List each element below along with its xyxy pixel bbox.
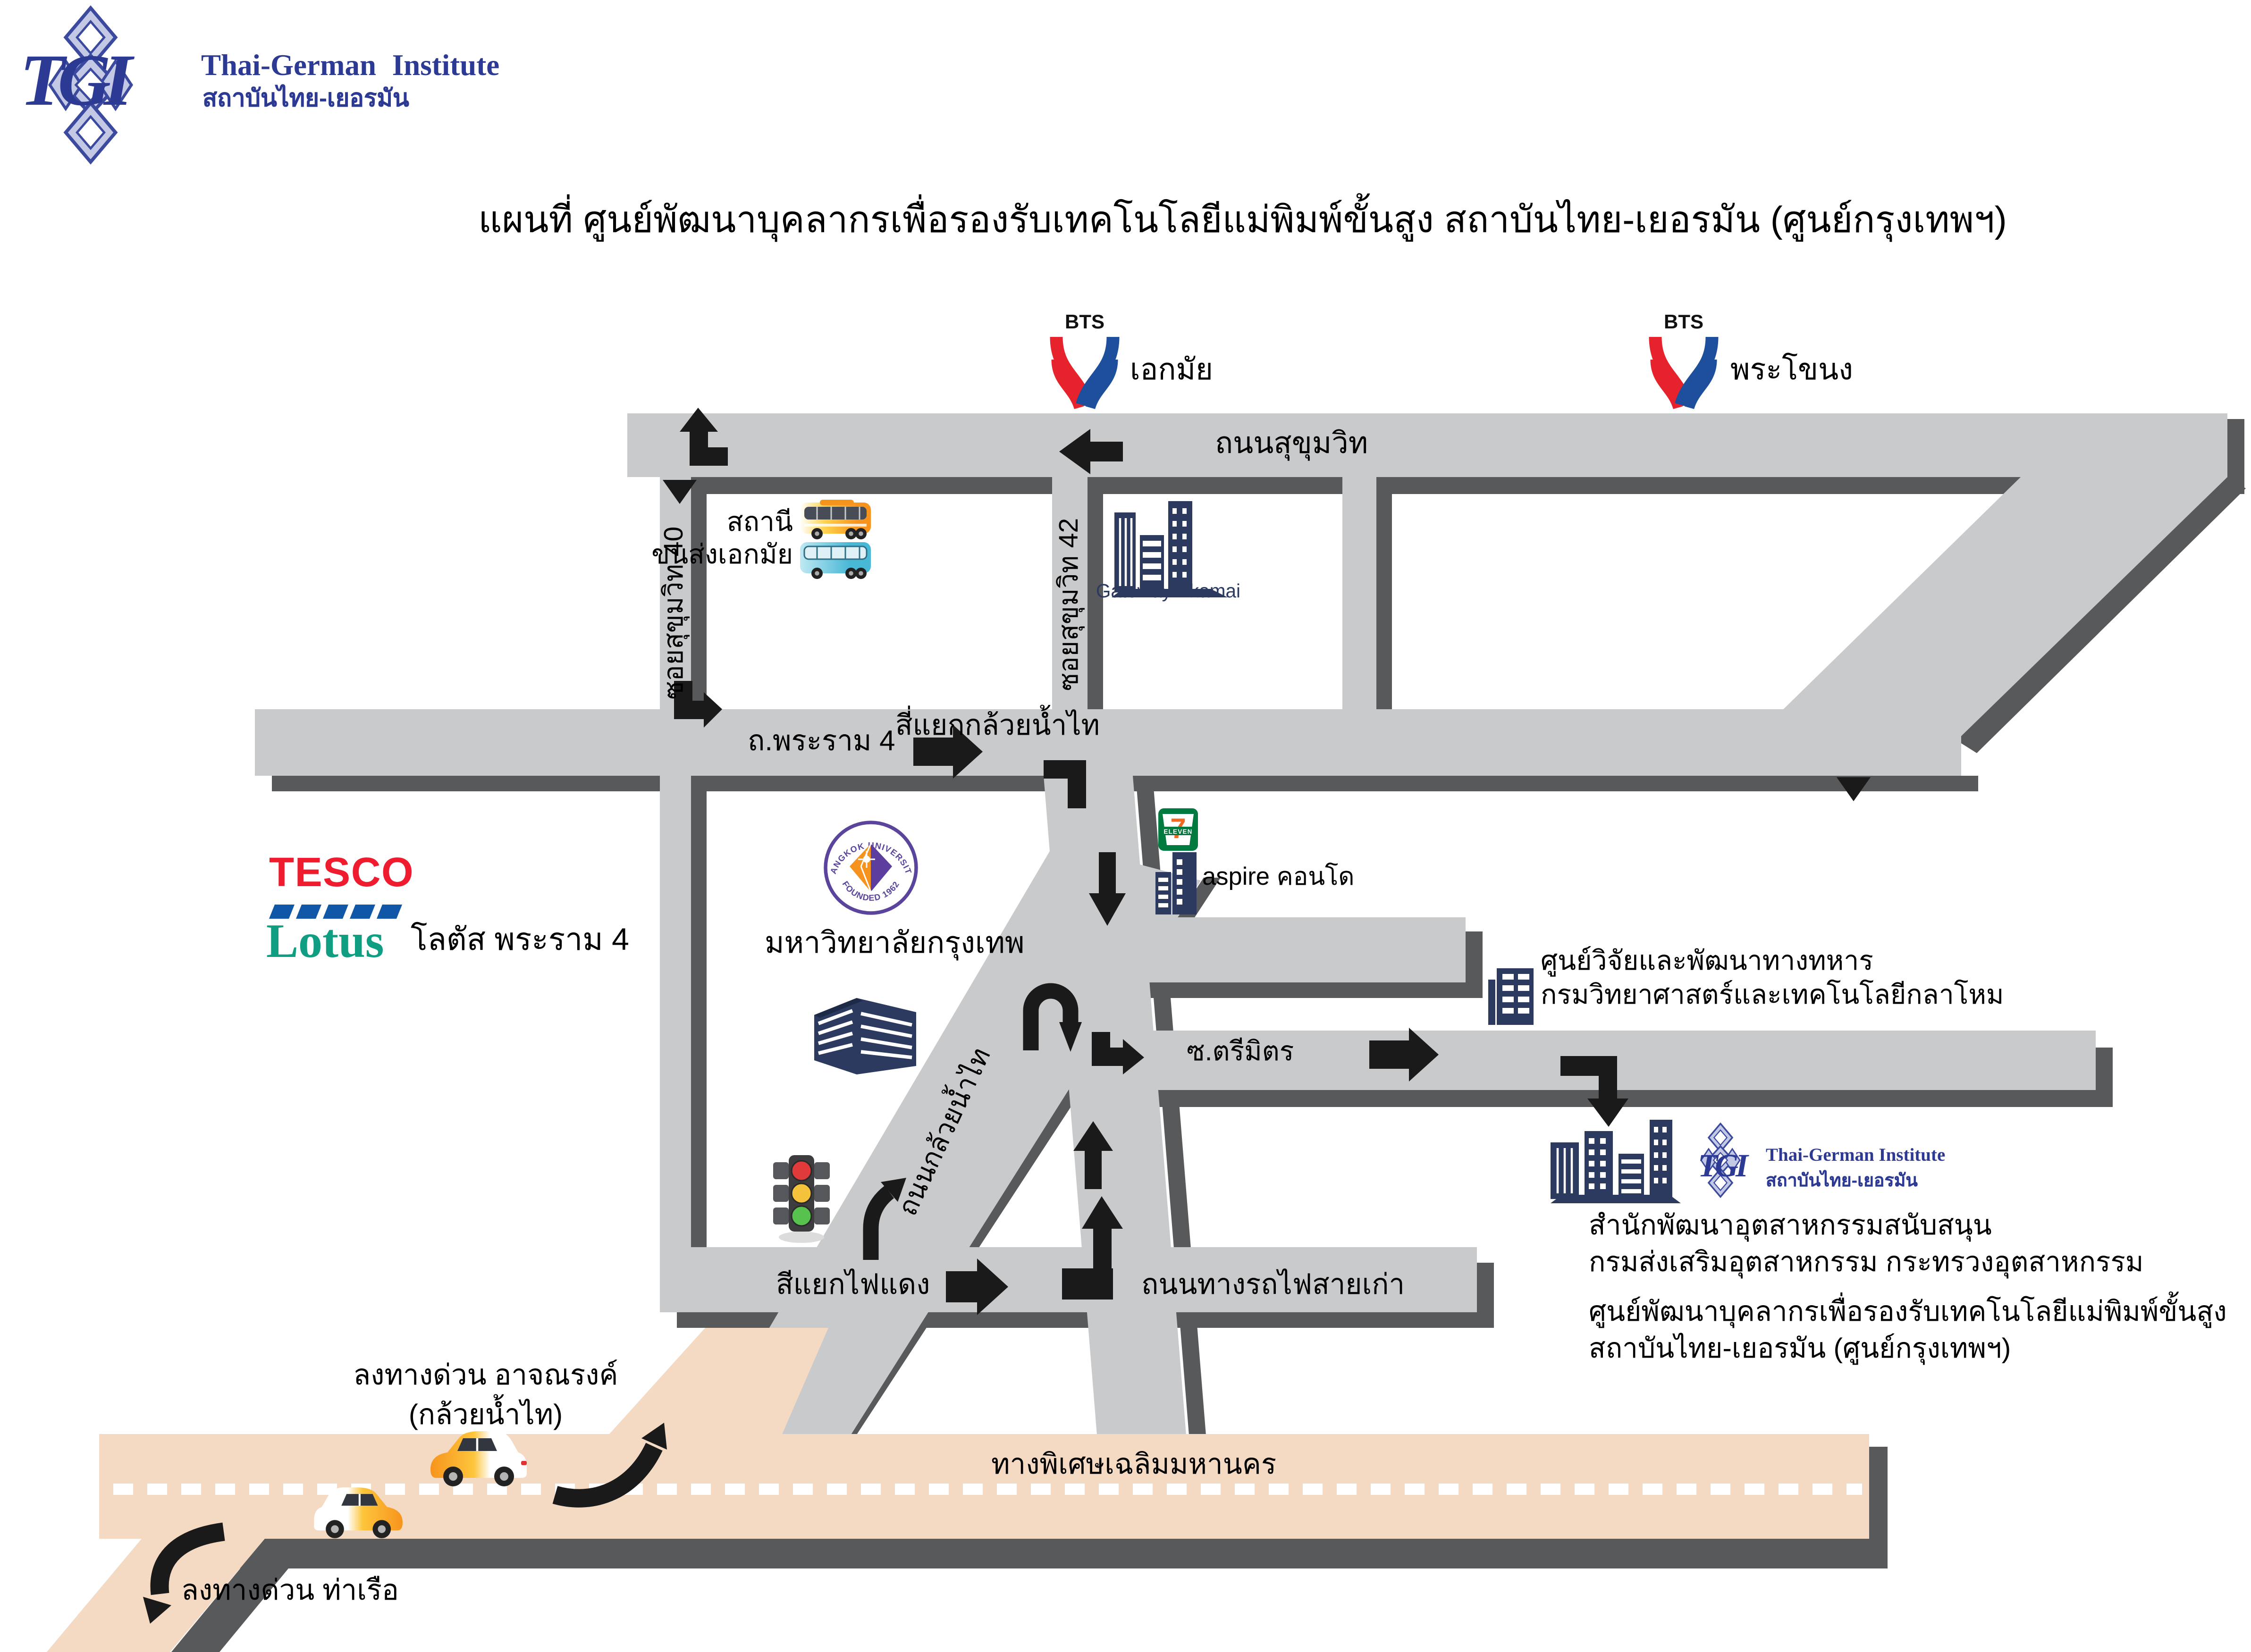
soi42-road-label: ซอยสุขุมวิท 42 [1055, 518, 1086, 691]
tgi-header-letters: TGI [20, 40, 126, 124]
svg-text:BTS: BTS [1065, 310, 1104, 333]
achanarong-line2: (กล้วยน้ำไท) [351, 1396, 620, 1435]
tesco-lotus-label: โลตัส พระราม 4 [411, 922, 629, 957]
bts-ekamai-icon: BTS [1056, 310, 1113, 408]
achanarong-exit-label: ลงทางด่วน อาจณรงค์ (กล้วยน้ำไท) [351, 1356, 620, 1435]
tesco-wordmark: TESCO [269, 851, 414, 898]
road-sukhumvit [627, 413, 2227, 477]
bangkok-university-building-icon [814, 998, 916, 1074]
svg-text:ELEVEN: ELEVEN [1163, 828, 1192, 835]
tgi-site-line1: สำนักพัฒนาอุตสาหกรรมสนับสนุน [1589, 1208, 2227, 1244]
map-page: BTS BTS [0, 0, 2251, 1652]
tgi-map-brand-th: สถาบันไทย-เยอรมัน [1766, 1171, 1918, 1191]
red-light-junction-label: สีแยกไฟแดง [776, 1270, 930, 1302]
bus-terminal-line2: ขนส่งเอกมัย [644, 539, 793, 572]
svg-text:BTS: BTS [1664, 310, 1703, 333]
tgi-map-brand-en: Thai-German Institute [1766, 1145, 1945, 1166]
intersection-label: สี่แยกกล้วยน้ำไท [867, 711, 1129, 743]
sukhumvit-road-label: ถนนสุขุมวิท [1215, 428, 1368, 461]
bus-orange-icon [800, 500, 871, 539]
aspire-condo-label: aspire คอนโด [1202, 862, 1354, 890]
tgi-site-line4: สถาบันไทย-เยอรมัน (ศูนย์กรุงเทพฯ) [1589, 1331, 2227, 1367]
map-canvas: BTS BTS [0, 0, 2251, 1652]
bts-phra-khanong-label: พระโขนง [1730, 354, 1853, 388]
military-line1: ศูนย์วิจัยและพัฒนาทางทหาร [1541, 946, 2004, 980]
tgi-map-letters: TGI [1698, 1148, 1745, 1185]
tgi-site-line3: ศูนย์พัฒนาบุคลากรเพื่อรองรับเทคโนโลยีแม่… [1589, 1294, 2227, 1331]
header-brand-en: Thai-German Institute [201, 48, 499, 82]
military-building-icon [1488, 968, 1534, 1025]
header-brand-th: สถาบันไทย-เยอรมัน [202, 85, 409, 113]
seven-eleven-icon: 7 ELEVEN [1158, 808, 1198, 851]
tgi-site-text: สำนักพัฒนาอุตสาหกรรมสนับสนุน กรมส่งเสริม… [1589, 1208, 2227, 1367]
military-line2: กรมวิทยาศาสตร์และเทคโนโลยีกลาโหม [1541, 980, 2004, 1014]
road-aspire [1119, 917, 1466, 982]
lotus-wordmark: Lotus [266, 914, 384, 970]
gateway-label: Gateway Ekamai [1090, 580, 1246, 603]
bus-terminal-label: สถานี ขนส่งเอกมัย [644, 507, 793, 572]
bts-ekamai-label: เอกมัย [1130, 354, 1213, 388]
bus-terminal-line1: สถานี [644, 507, 793, 539]
expressway-label: ทางพิเศษเฉลิมมหานคร [991, 1450, 1276, 1482]
aspire-building-icon [1155, 852, 1197, 914]
port-exit-label: ลงทางด่วน ท่าเรือ [181, 1576, 399, 1608]
bangkok-university-label: มหาวิทยาลัยกรุงเทพ [765, 927, 977, 961]
road-gateway-east [1342, 477, 1376, 725]
traffic-light-icon [773, 1155, 830, 1243]
railway-road-label: ถนนทางรถไฟสายเก่า [1141, 1270, 1405, 1302]
bts-phra-khanong-icon: BTS [1655, 310, 1712, 408]
trimit-road-label: ซ.ตรีมิตร [1187, 1038, 1294, 1069]
tgi-buildings-icon [1551, 1120, 1681, 1203]
military-research-label: ศูนย์วิจัยและพัฒนาทางทหาร กรมวิทยาศาสตร์… [1541, 946, 2004, 1014]
road-sukhumvit-diagonal [1756, 477, 2227, 736]
bangkok-university-seal-icon: BANGKOK UNIVERSITY FOUNDED 1962 [821, 813, 916, 913]
achanarong-line1: ลงทางด่วน อาจณรงค์ [351, 1356, 620, 1396]
bus-blue-icon [800, 542, 871, 579]
page-title: แผนที่ ศูนย์พัฒนาบุคลากรเพื่อรองรับเทคโน… [382, 200, 2103, 242]
tgi-site-line2: กรมส่งเสริมอุตสาหกรรม กระทรวงอุตสาหกรรม [1589, 1244, 2227, 1281]
